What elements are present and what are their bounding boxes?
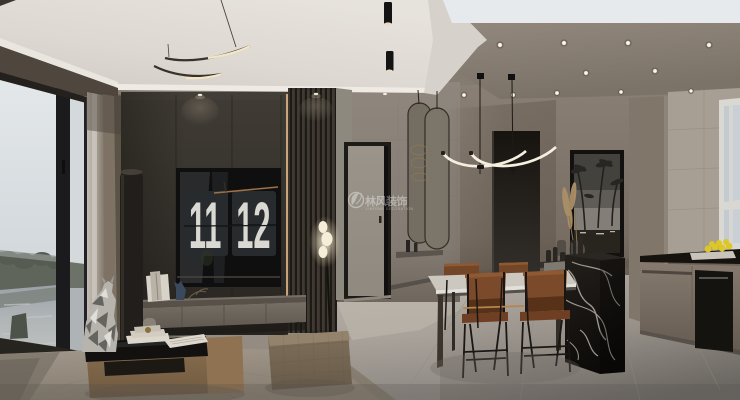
svg-text:林风装饰: 林风装饰 — [365, 194, 407, 208]
svg-text:12: 12 — [236, 188, 270, 262]
svg-text:LINFENG DECORATION: LINFENG DECORATION — [366, 207, 413, 211]
